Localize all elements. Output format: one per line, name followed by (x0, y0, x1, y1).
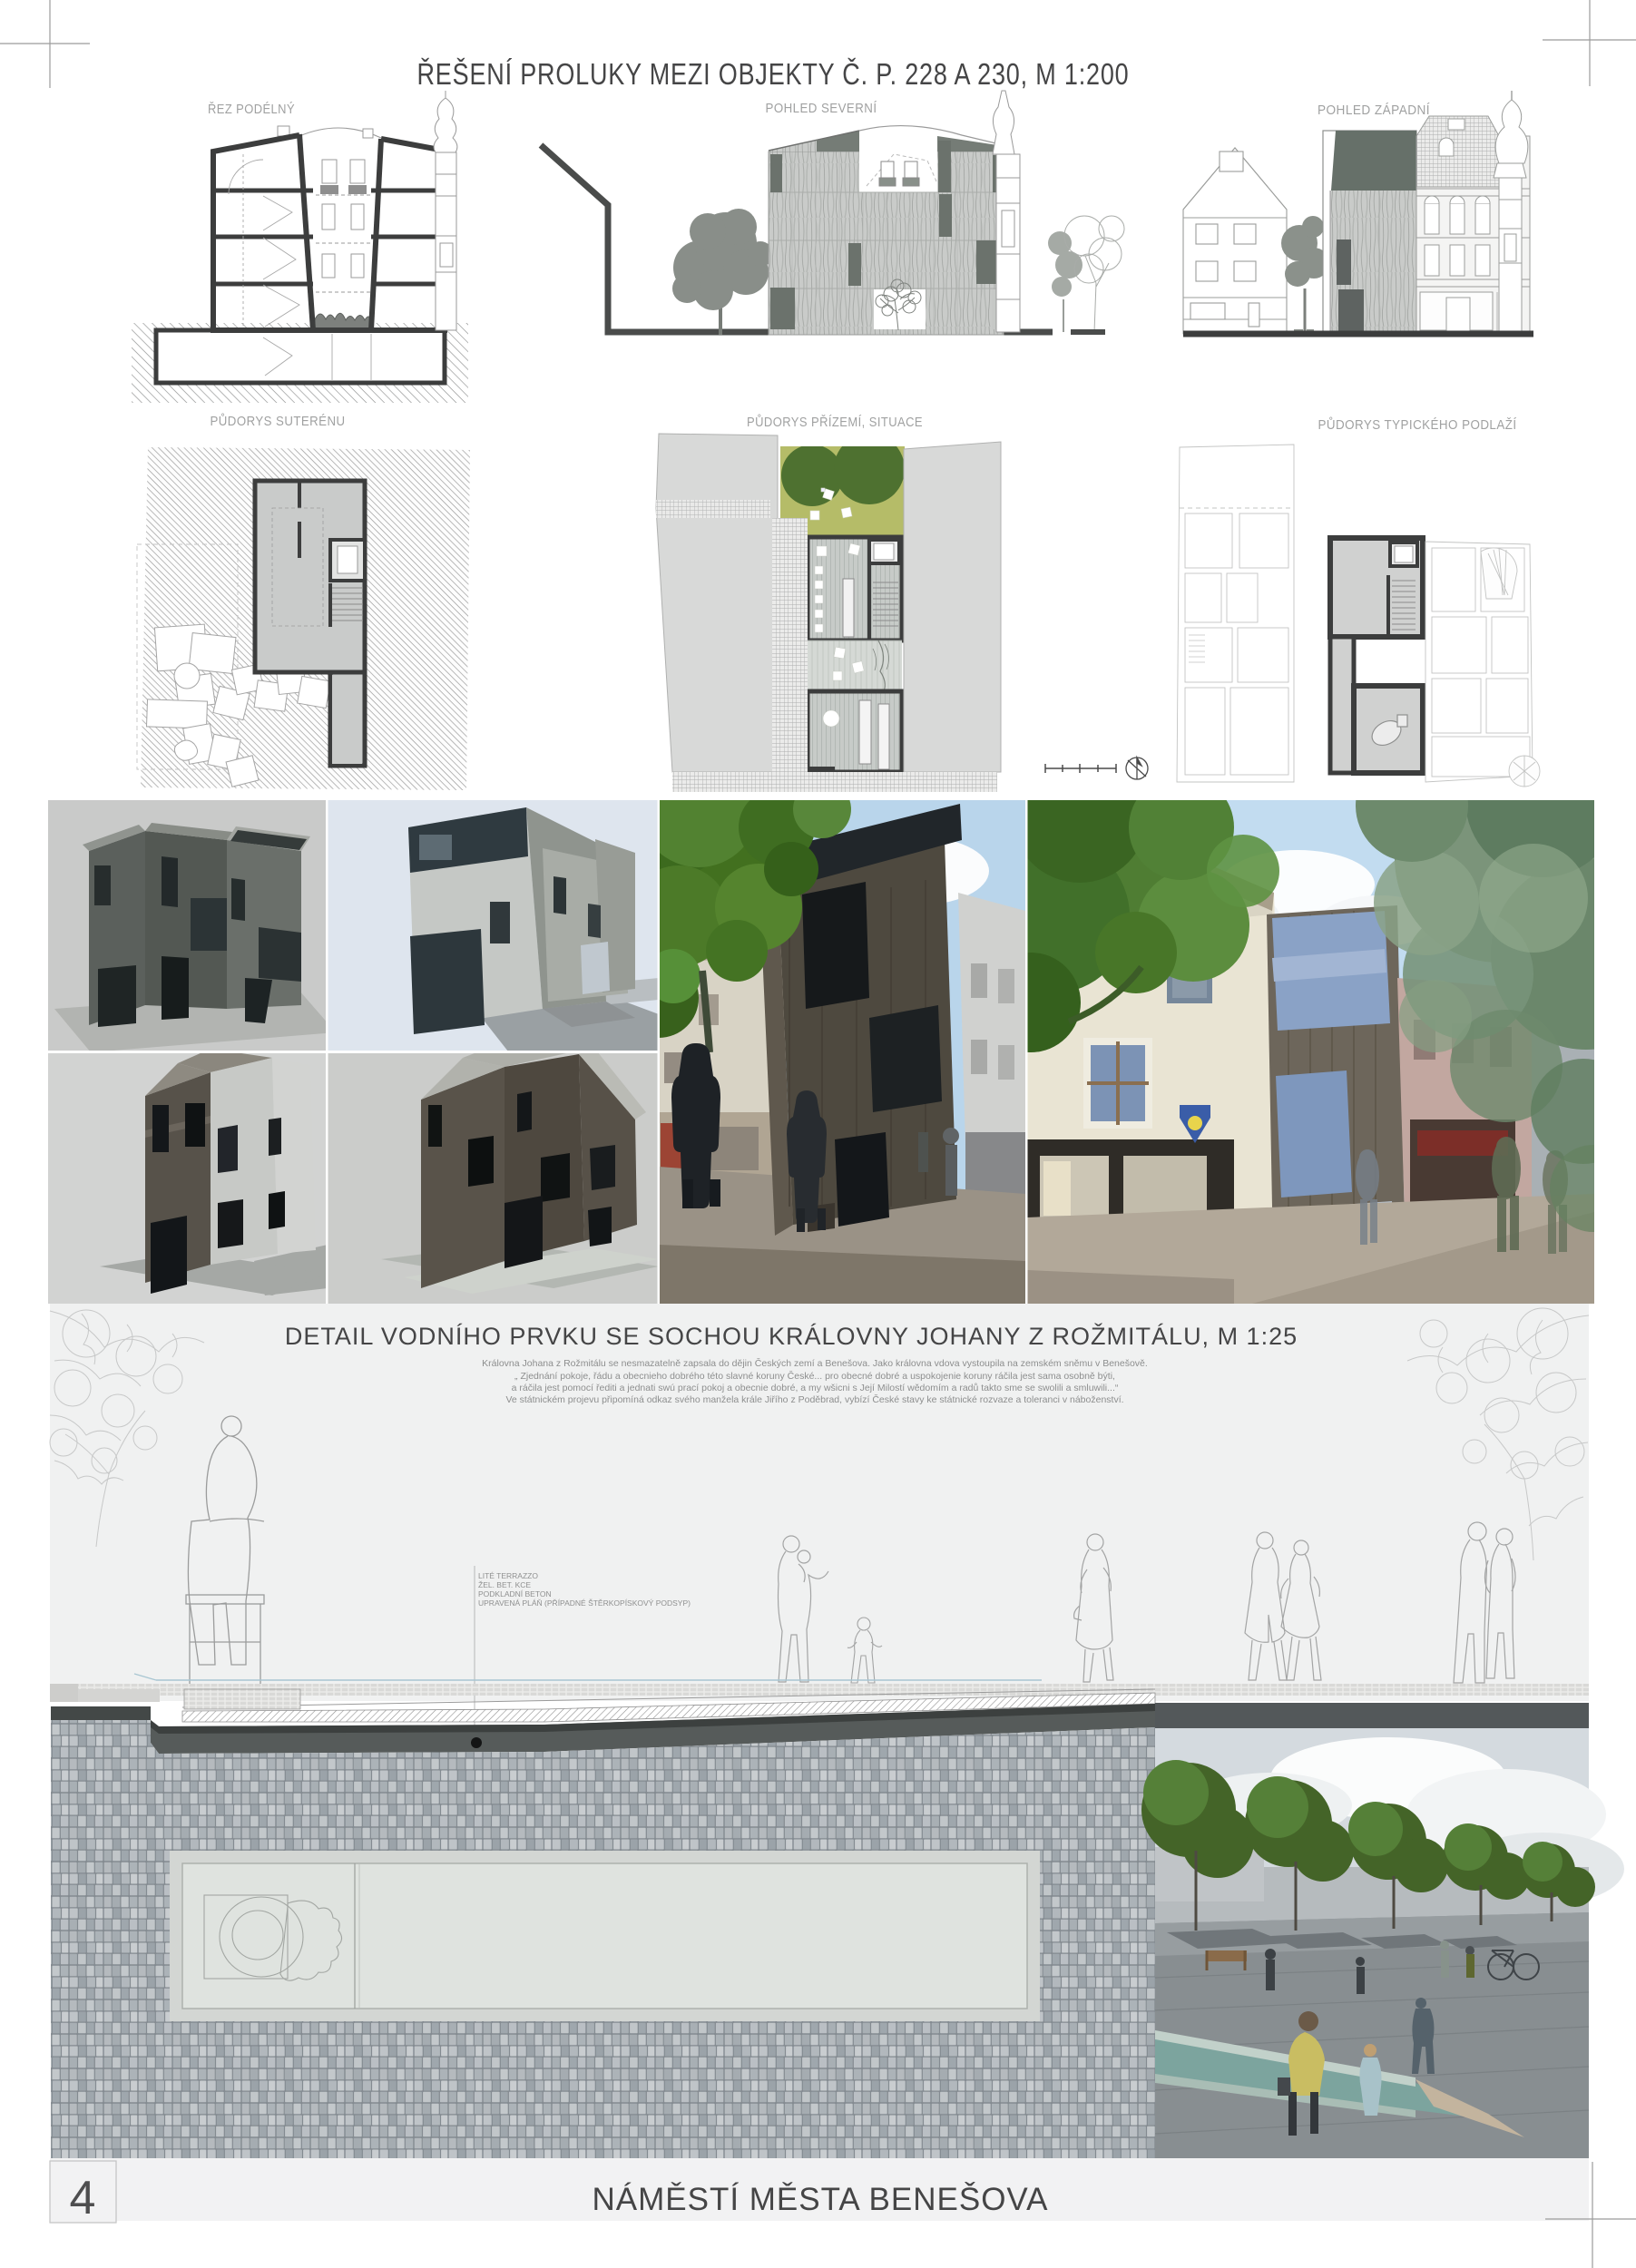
svg-text:„ Zjednání pokoje, řádu a obec: „ Zjednání pokoje, řádu a obecnieho dobr… (514, 1370, 1115, 1382)
svg-text:POHLED SEVERNÍ: POHLED SEVERNÍ (766, 101, 877, 116)
svg-text:Ve státnickém projevu připomín: Ve státnickém projevu připomíná odkaz sv… (505, 1393, 1123, 1405)
svg-text:PODKLADNÍ BETON: PODKLADNÍ BETON (478, 1589, 552, 1598)
svg-text:PŮDORYS SUTERÉNU: PŮDORYS SUTERÉNU (211, 413, 346, 429)
svg-text:ŘEZ PODÉLNÝ: ŘEZ PODÉLNÝ (208, 102, 295, 117)
svg-text:a ráčila jest pomocí řediti a: a ráčila jest pomocí řediti a jednati sw… (512, 1383, 1119, 1393)
svg-text:PŮDORYS TYPICKÉHO PODLAŽÍ: PŮDORYS TYPICKÉHO PODLAŽÍ (1318, 416, 1517, 433)
svg-text:POHLED ZÁPADNÍ: POHLED ZÁPADNÍ (1318, 103, 1430, 118)
svg-text:UPRAVENÁ PLÁŇ (PŘÍPADNÉ ŠTĚRKO: UPRAVENÁ PLÁŇ (PŘÍPADNÉ ŠTĚRKOPÍSKOVÝ PO… (478, 1598, 691, 1608)
svg-text:4: 4 (70, 2172, 96, 2224)
svg-text:ŘEŠENÍ PROLUKY MEZI OBJEKTY Č.: ŘEŠENÍ PROLUKY MEZI OBJEKTY Č. P. 228 A … (417, 57, 1130, 91)
svg-text:DETAIL VODNÍHO PRVKU SE SOCHOU: DETAIL VODNÍHO PRVKU SE SOCHOU KRÁLOVNY … (285, 1322, 1298, 1350)
svg-text:NÁMĚSTÍ MĚSTA BENEŠOVA: NÁMĚSTÍ MĚSTA BENEŠOVA (592, 2182, 1048, 2217)
svg-text:ŽEL. BET. KCE: ŽEL. BET. KCE (478, 1580, 531, 1589)
svg-text:PŮDORYS PŘÍZEMÍ, SITUACE: PŮDORYS PŘÍZEMÍ, SITUACE (747, 414, 923, 430)
svg-text:LITÉ TERRAZZO: LITÉ TERRAZZO (478, 1571, 538, 1580)
svg-text:Královna Johana z Rožmitálu se: Královna Johana z Rožmitálu se nesmazate… (482, 1357, 1148, 1369)
